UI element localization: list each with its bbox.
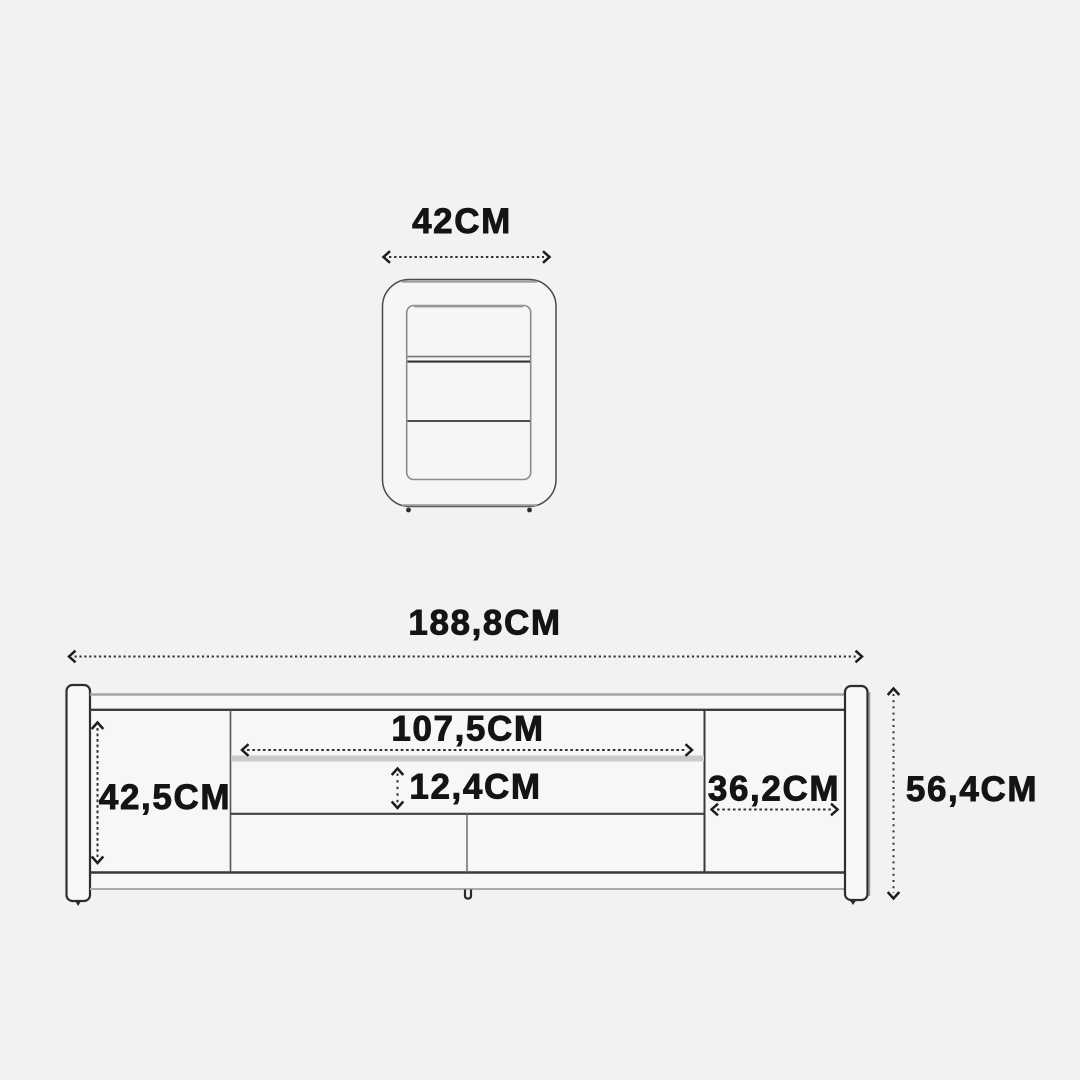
svg-text:107,5CM: 107,5CM bbox=[391, 710, 544, 749]
svg-text:188,8CM: 188,8CM bbox=[408, 604, 561, 643]
svg-text:42,5CM: 42,5CM bbox=[99, 778, 231, 817]
svg-text:56,4CM: 56,4CM bbox=[906, 770, 1038, 809]
svg-text:42CM: 42CM bbox=[412, 202, 512, 241]
svg-text:12,4CM: 12,4CM bbox=[409, 768, 541, 807]
svg-text:36,2CM: 36,2CM bbox=[708, 770, 840, 809]
